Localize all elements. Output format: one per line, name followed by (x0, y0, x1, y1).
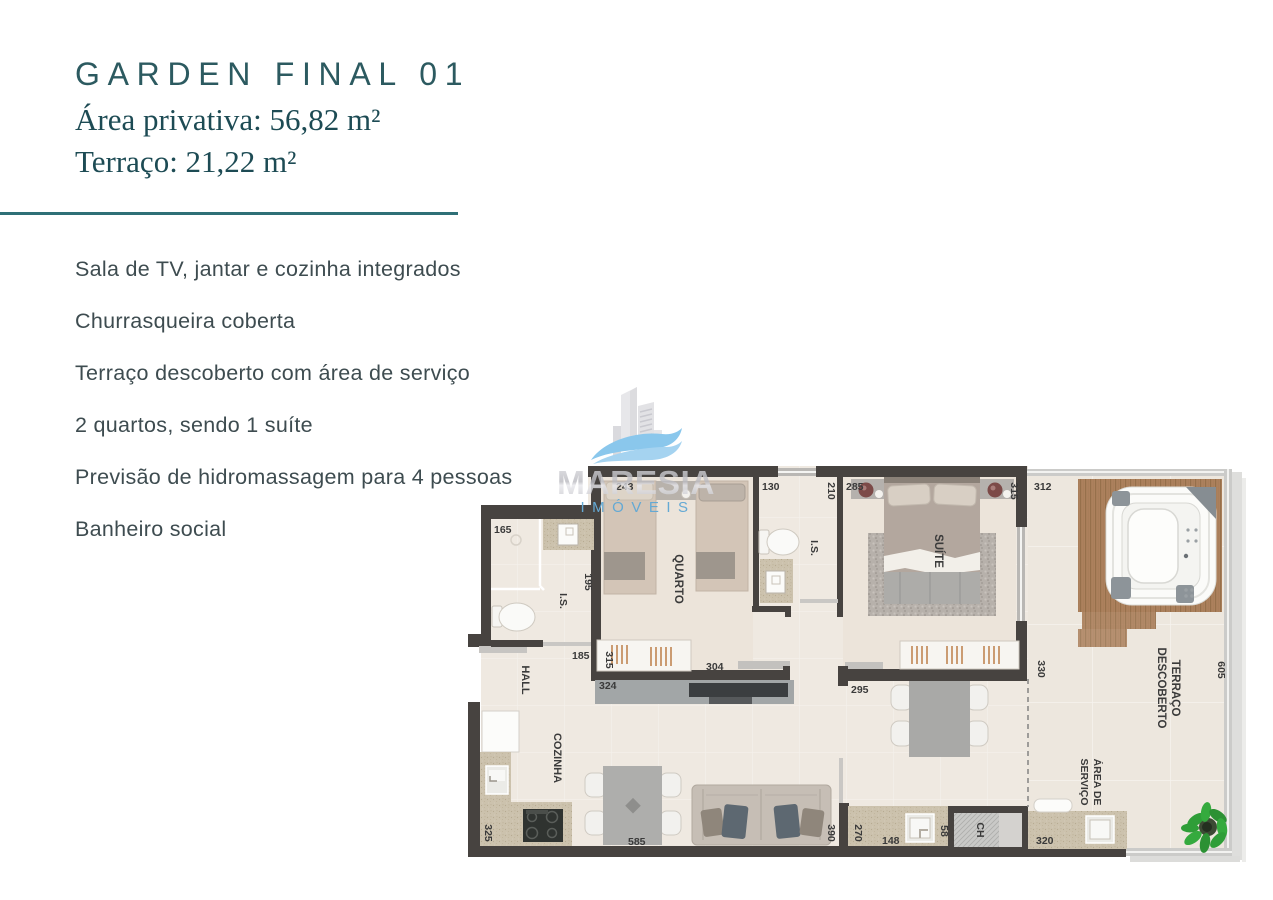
svg-text:COZINHA: COZINHA (551, 733, 563, 783)
svg-text:295: 295 (851, 684, 869, 696)
svg-text:312: 312 (1034, 481, 1052, 493)
svg-text:315: 315 (603, 651, 615, 669)
svg-text:130: 130 (762, 481, 780, 493)
svg-text:320: 320 (1036, 835, 1054, 847)
svg-text:330: 330 (1035, 660, 1047, 678)
svg-text:QUARTO: QUARTO (672, 554, 684, 604)
svg-text:165: 165 (494, 524, 512, 536)
svg-text:390: 390 (825, 824, 837, 842)
svg-text:SUÍTE: SUÍTE (932, 534, 945, 568)
svg-text:210: 210 (825, 482, 837, 500)
svg-text:585: 585 (628, 836, 646, 848)
svg-text:304: 304 (706, 661, 724, 673)
svg-text:195: 195 (582, 573, 594, 591)
svg-text:185: 185 (572, 650, 590, 662)
svg-text:CH: CH (974, 822, 986, 837)
svg-text:58: 58 (938, 825, 950, 837)
svg-text:I.S.: I.S. (808, 540, 820, 556)
svg-text:IMÓVEIS: IMÓVEIS (580, 499, 695, 516)
svg-text:270: 270 (852, 824, 864, 842)
svg-text:285: 285 (846, 481, 864, 493)
svg-text:324: 324 (599, 680, 617, 692)
svg-text:MARESIA: MARESIA (557, 465, 715, 502)
svg-text:325: 325 (482, 824, 494, 842)
svg-text:HALL: HALL (519, 665, 531, 695)
svg-text:605: 605 (1215, 661, 1227, 679)
svg-text:I.S.: I.S. (557, 593, 569, 609)
svg-text:315: 315 (1008, 482, 1020, 500)
svg-text:148: 148 (882, 835, 900, 847)
